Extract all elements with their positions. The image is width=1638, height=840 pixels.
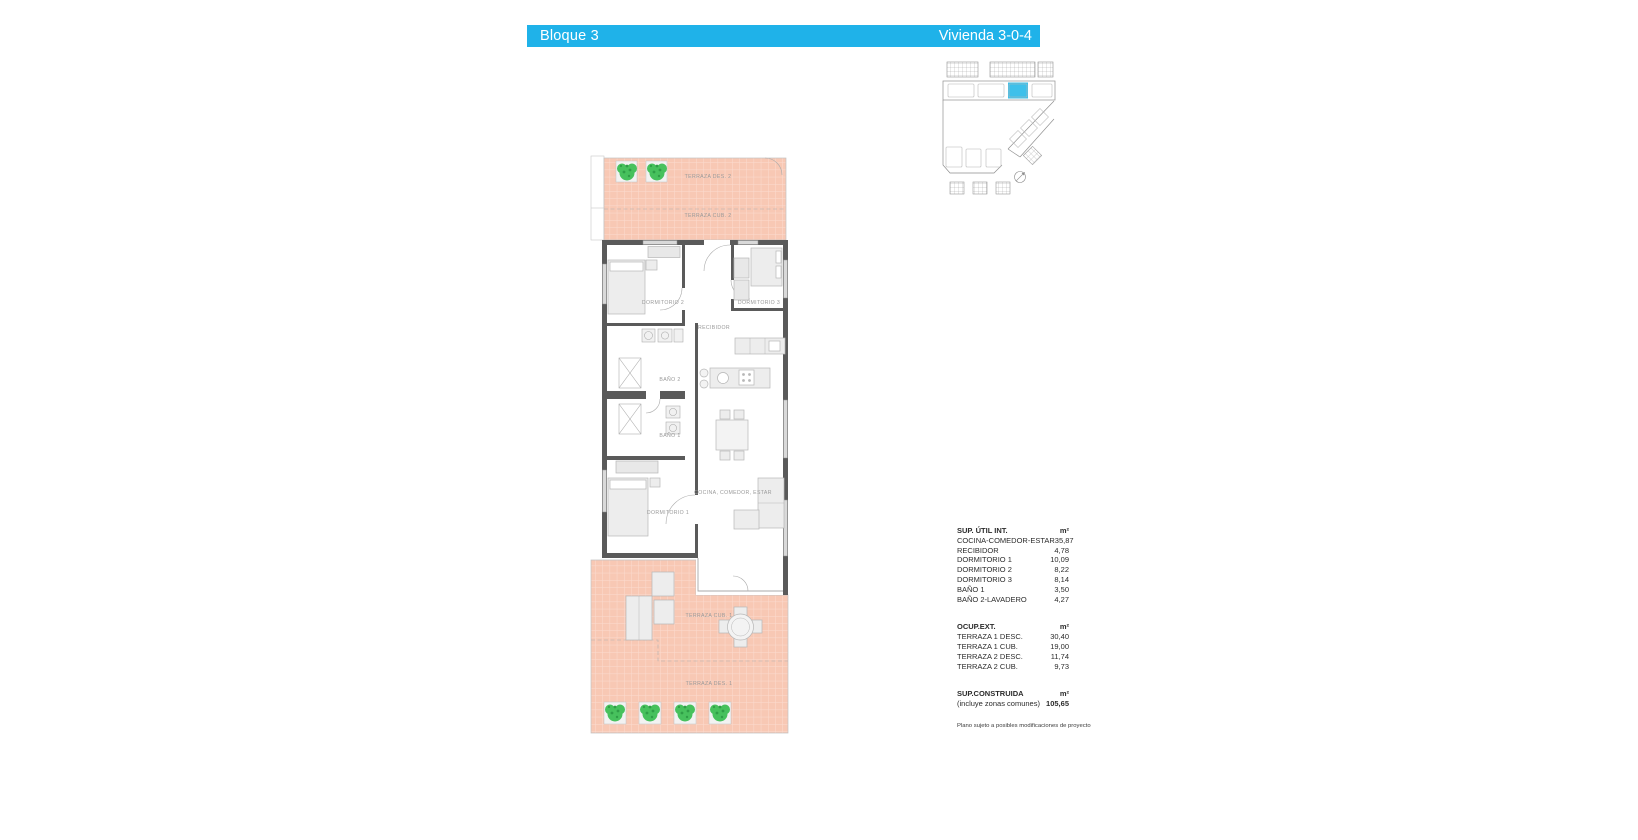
area-row-value: 10,09 — [1050, 555, 1069, 565]
area-row-value: 4,27 — [1054, 595, 1069, 605]
plan-disclaimer: Plano sujeto a posibles modificaciones d… — [957, 723, 1069, 729]
page: Bloque 3 Vivienda 3-0-4 — [0, 0, 1638, 840]
area-section-util: SUP. ÚTIL INT. m² COCINA-COMEDOR-ESTAR35… — [957, 526, 1069, 604]
room-label-terraza-des-1: TERRAZA DES. 1 — [686, 681, 733, 687]
area-row-label: TERRAZA 1 CUB. — [957, 642, 1018, 652]
area-row-label: (incluye zonas comunes) — [957, 699, 1040, 709]
keyplan-lower-wing-units — [946, 147, 1001, 167]
area-row-label: DORMITORIO 2 — [957, 565, 1012, 575]
room-label-terraza-cub-2: TERRAZA CUB. 2 — [685, 213, 732, 219]
room-label-recibidor: RECIBIDOR — [698, 325, 730, 331]
area-row-value: 3,50 — [1054, 585, 1069, 595]
area-unit-header: m² — [1060, 622, 1069, 632]
room-label-bano-1: BAÑO 1 — [659, 432, 680, 439]
site-key-plan — [898, 55, 1058, 197]
area-section-title: OCUP.EXT. — [957, 622, 996, 632]
keyplan-highlighted-unit — [1008, 83, 1028, 99]
area-row-label: DORMITORIO 3 — [957, 575, 1012, 585]
keyplan-pergola-grids — [947, 62, 1053, 77]
area-section-construida: SUP.CONSTRUIDA m² (incluye zonas comunes… — [957, 689, 1069, 709]
area-row-value: 9,73 — [1054, 662, 1069, 672]
area-row-label: DORMITORIO 1 — [957, 555, 1012, 565]
room-label-terraza-cub-1: TERRAZA CUB. 1 — [686, 613, 733, 619]
room-label-dormitorio-3: DORMITORIO 3 — [738, 300, 780, 306]
kitchen-counter — [735, 338, 785, 354]
floor-plan: TERRAZA DES. 2 TERRAZA CUB. 2 TERRAZA CU… — [588, 148, 793, 738]
room-label-cocina-comedor-estar: COCINA, COMEDOR, ESTAR — [694, 490, 772, 496]
area-row-value: 8,14 — [1054, 575, 1069, 585]
area-row-label: RECIBIDOR — [957, 546, 999, 556]
area-section-title: SUP. ÚTIL INT. — [957, 526, 1008, 536]
area-row-value: 4,78 — [1054, 546, 1069, 556]
keyplan-lower-wing-outline — [943, 100, 1002, 173]
neighbour-terrace-strip — [591, 156, 604, 240]
room-label-dormitorio-2: DORMITORIO 2 — [642, 300, 684, 306]
area-row-value: 105,65 — [1046, 699, 1069, 709]
area-section-title: SUP.CONSTRUIDA — [957, 689, 1024, 699]
block-label: Bloque 3 — [540, 28, 599, 44]
title-bar: Bloque 3 Vivienda 3-0-4 — [527, 25, 1040, 47]
room-label-terraza-des-2: TERRAZA DES. 2 — [685, 174, 732, 180]
area-row-label: TERRAZA 2 CUB. — [957, 662, 1018, 672]
area-section-exterior: OCUP.EXT. m² TERRAZA 1 DESC.30,40 TERRAZ… — [957, 622, 1069, 671]
area-row-value: 11,74 — [1051, 652, 1069, 662]
room-label-dormitorio-1: DORMITORIO 1 — [647, 510, 689, 516]
area-row-label: BAÑO 2-LAVADERO — [957, 595, 1027, 605]
area-row-label: COCINA-COMEDOR-ESTAR — [957, 536, 1055, 546]
area-unit-header: m² — [1060, 526, 1069, 536]
area-row-value: 30,40 — [1050, 632, 1069, 642]
area-row-label: TERRAZA 2 DESC. — [957, 652, 1023, 662]
north-arrow-icon — [1015, 172, 1026, 183]
room-label-bano-2: BAÑO 2 — [659, 376, 680, 383]
area-row-value: 19,00 — [1050, 642, 1069, 652]
keyplan-bottom-grids — [950, 182, 1010, 194]
unit-label: Vivienda 3-0-4 — [939, 28, 1032, 44]
area-row-label: BAÑO 1 — [957, 585, 985, 595]
area-row-value: 35,87 — [1055, 536, 1074, 546]
area-unit-header: m² — [1060, 689, 1069, 699]
area-row-label: TERRAZA 1 DESC. — [957, 632, 1023, 642]
area-row-value: 8,22 — [1054, 565, 1069, 575]
kitchen-island — [700, 368, 770, 388]
keyplan-hatched-element — [1023, 146, 1041, 164]
area-table: SUP. ÚTIL INT. m² COCINA-COMEDOR-ESTAR35… — [957, 526, 1069, 729]
